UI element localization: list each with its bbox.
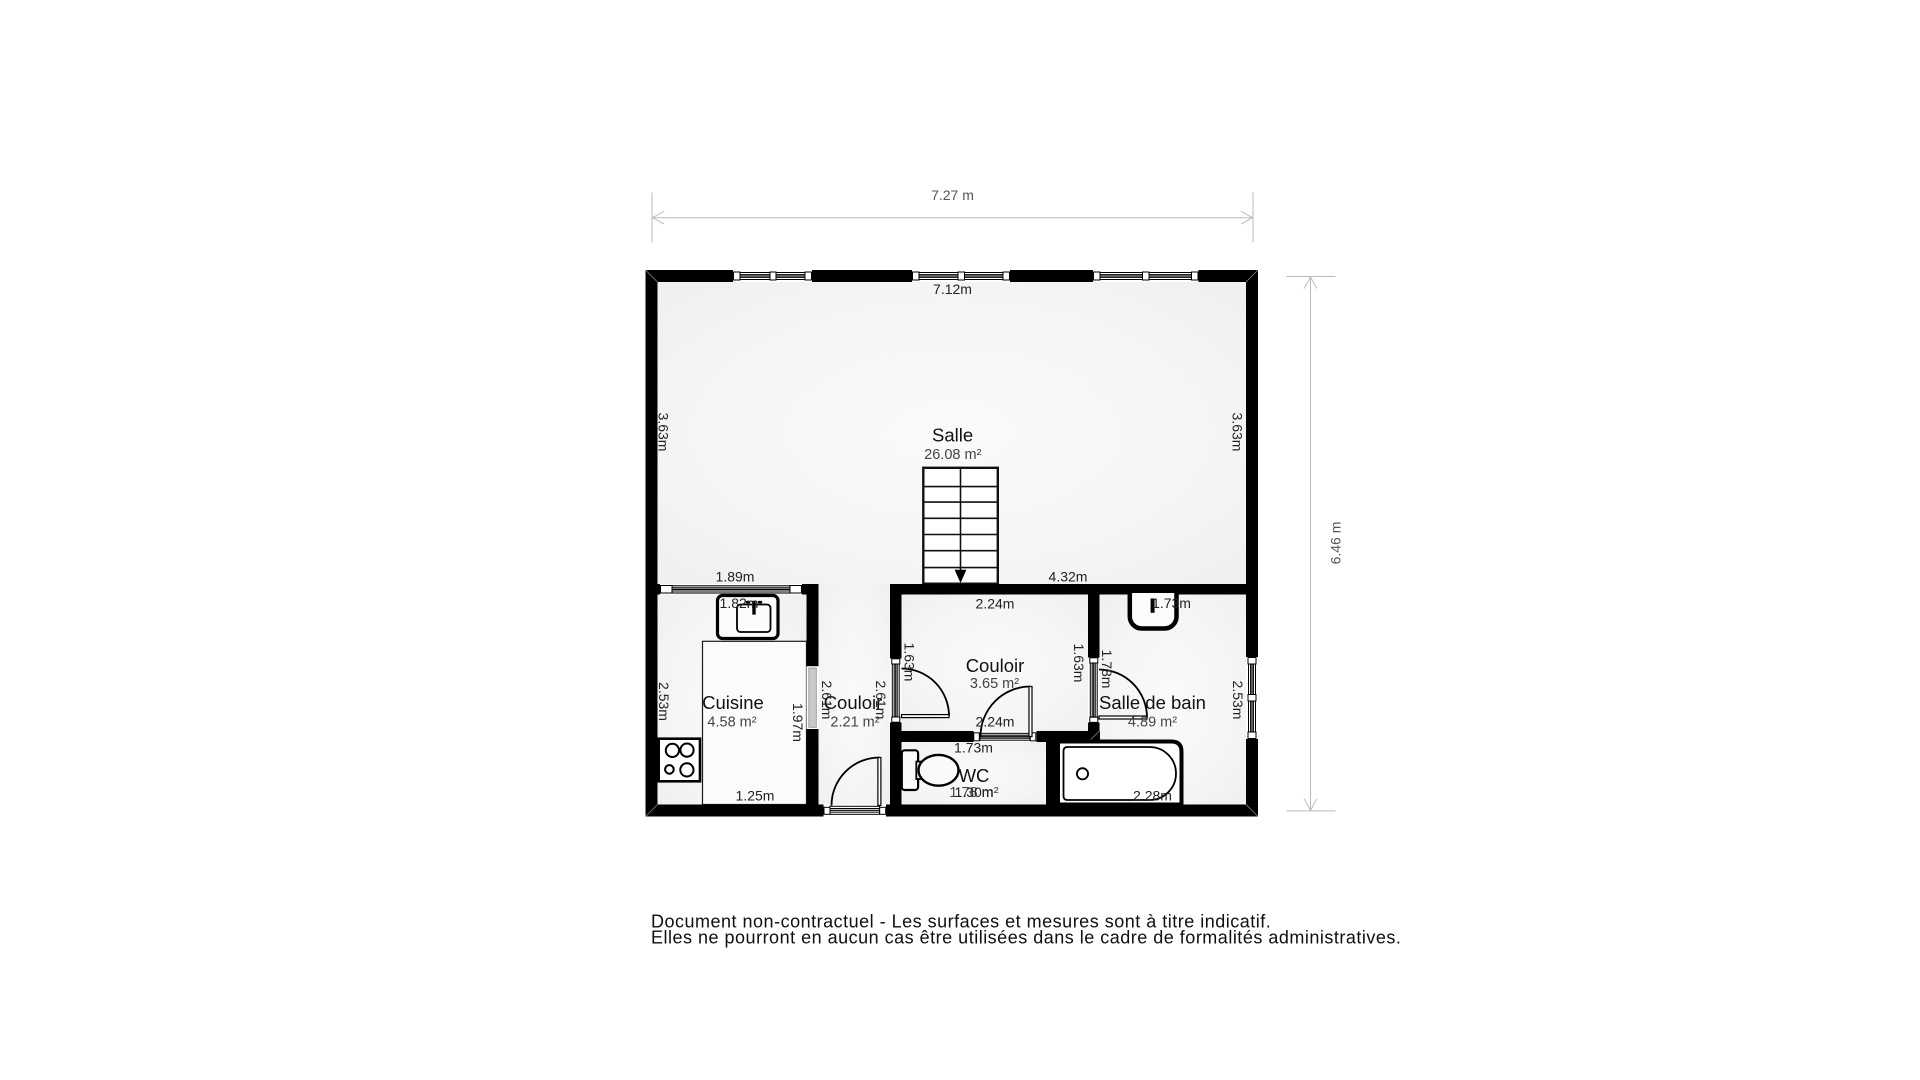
svg-text:1.89m: 1.89m — [716, 569, 755, 585]
svg-text:3.63m: 3.63m — [1230, 413, 1246, 452]
svg-text:7.27 m: 7.27 m — [931, 187, 974, 203]
svg-text:1.30m: 1.30m — [955, 784, 994, 800]
svg-text:26.08 m²: 26.08 m² — [924, 447, 981, 463]
svg-text:2.24m: 2.24m — [976, 595, 1015, 611]
svg-text:2.21 m²: 2.21 m² — [830, 715, 879, 731]
svg-text:2.53m: 2.53m — [1230, 681, 1246, 720]
svg-text:2.28m: 2.28m — [1133, 788, 1172, 804]
svg-text:1.25m: 1.25m — [736, 788, 775, 804]
svg-text:3.65 m²: 3.65 m² — [970, 676, 1019, 692]
svg-text:1.97m: 1.97m — [790, 703, 806, 742]
svg-text:WC: WC — [959, 765, 990, 786]
svg-text:1.78m: 1.78m — [1099, 650, 1115, 689]
svg-text:Salle de bain: Salle de bain — [1099, 692, 1206, 713]
svg-text:Elles ne pourront en aucun cas: Elles ne pourront en aucun cas être util… — [651, 928, 1401, 948]
svg-text:4.89 m²: 4.89 m² — [1128, 715, 1177, 731]
svg-text:1.82m: 1.82m — [720, 595, 759, 611]
svg-text:Salle: Salle — [932, 425, 973, 446]
svg-text:2.61m: 2.61m — [873, 681, 889, 720]
svg-text:2.53m: 2.53m — [656, 682, 672, 721]
svg-text:7.12m: 7.12m — [933, 281, 972, 297]
svg-text:1.73m: 1.73m — [1152, 595, 1191, 611]
svg-text:4.32m: 4.32m — [1049, 569, 1088, 585]
svg-text:1.63m: 1.63m — [1071, 644, 1087, 683]
svg-text:6.46 m: 6.46 m — [1328, 522, 1344, 565]
svg-text:2.24m: 2.24m — [976, 714, 1015, 730]
svg-text:Couloir: Couloir — [966, 655, 1025, 676]
svg-text:Cuisine: Cuisine — [702, 692, 764, 713]
svg-text:1.73m: 1.73m — [954, 740, 993, 756]
svg-text:2.61m: 2.61m — [819, 681, 835, 720]
svg-text:3.63m: 3.63m — [656, 413, 672, 452]
svg-text:1.63m: 1.63m — [902, 643, 918, 682]
svg-text:4.58 m²: 4.58 m² — [707, 715, 756, 731]
